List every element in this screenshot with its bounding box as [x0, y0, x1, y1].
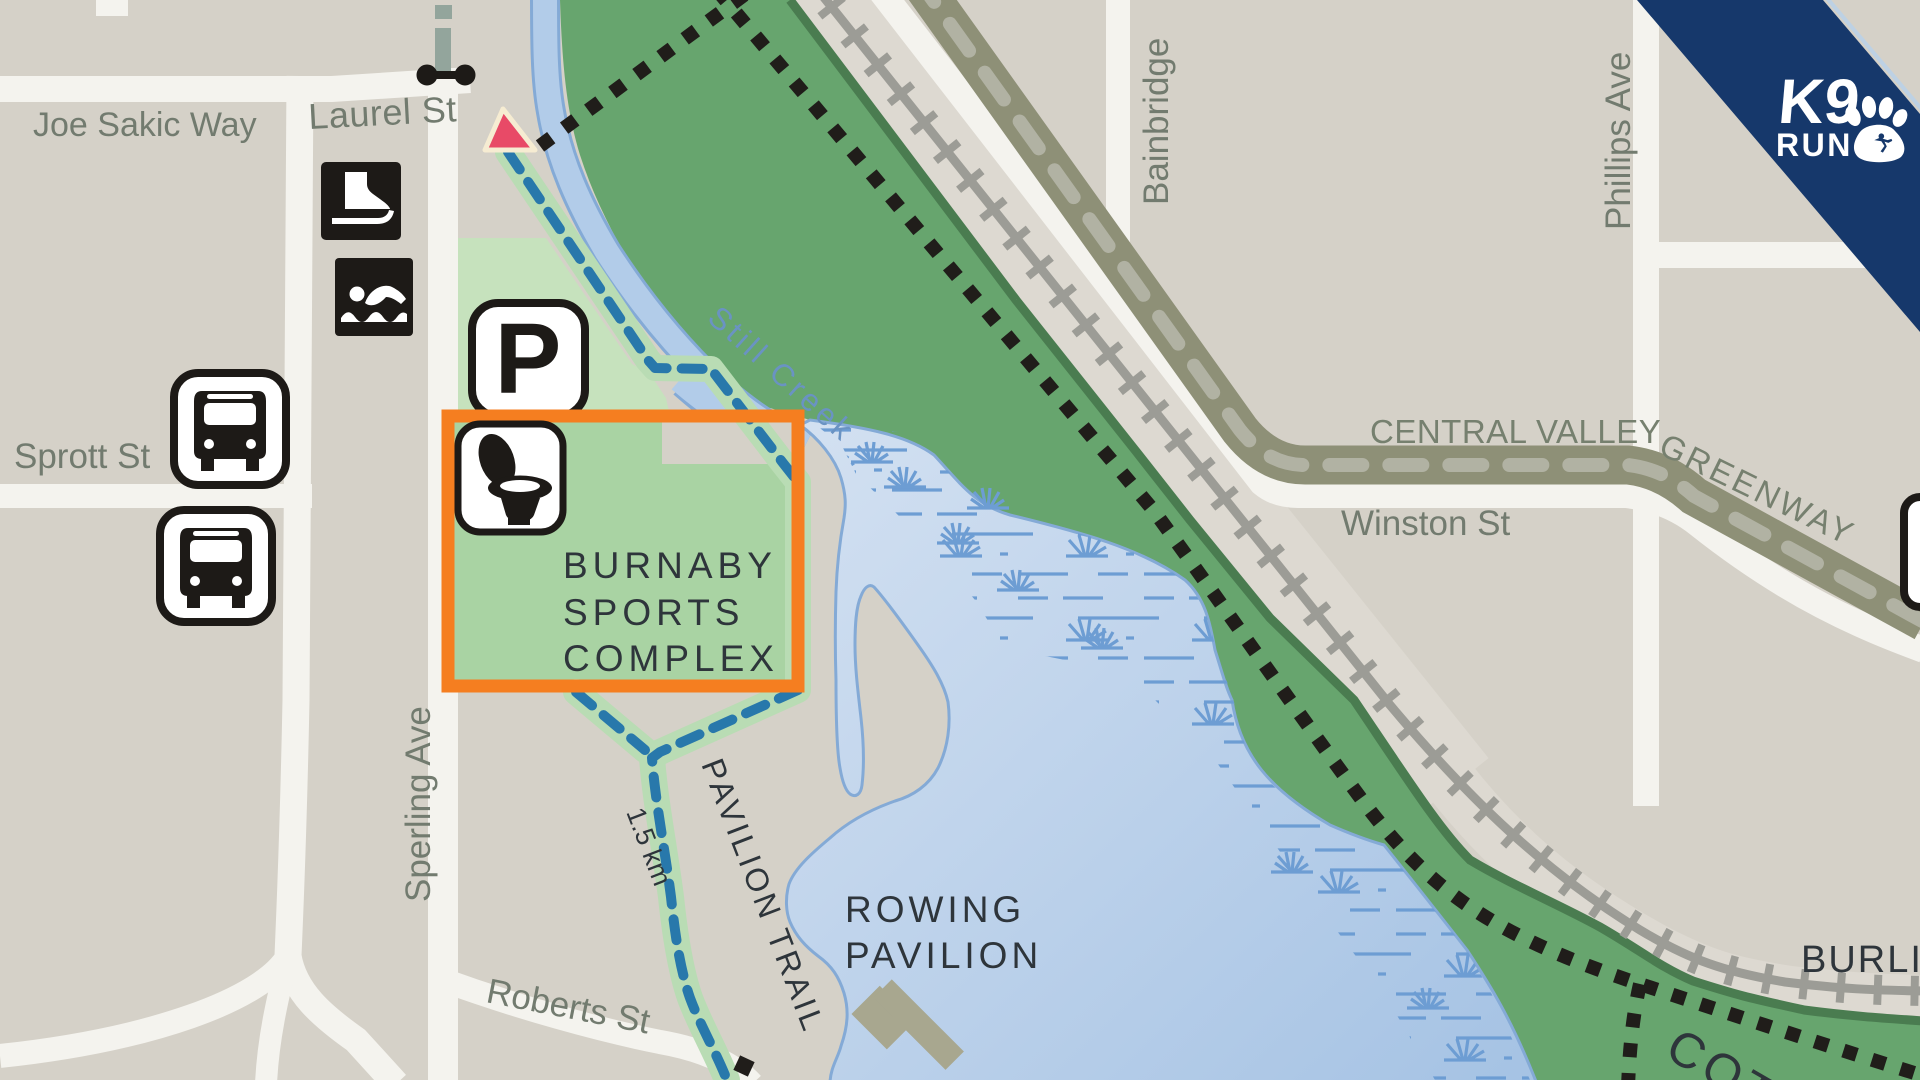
- svg-text:CENTRAL VALLEY: CENTRAL VALLEY: [1370, 413, 1661, 450]
- svg-text:COMPLEX: COMPLEX: [563, 638, 779, 679]
- svg-text:ROWING: ROWING: [845, 889, 1025, 930]
- svg-text:Phillips Ave: Phillips Ave: [1599, 52, 1638, 230]
- svg-text:BURNABY: BURNABY: [563, 545, 777, 586]
- svg-text:Sprott St: Sprott St: [14, 437, 150, 476]
- svg-text:Sperling Ave: Sperling Ave: [399, 706, 438, 902]
- svg-text:SPORTS: SPORTS: [563, 592, 744, 633]
- svg-text:Laurel St: Laurel St: [307, 88, 458, 137]
- svg-text:Bainbridge: Bainbridge: [1137, 38, 1176, 205]
- svg-text:PAVILION: PAVILION: [845, 935, 1042, 976]
- svg-text:BURLINGTON: BURLINGTON: [1801, 939, 1920, 981]
- svg-text:Joe Sakic Way: Joe Sakic Way: [33, 106, 257, 144]
- svg-text:RUN: RUN: [1776, 127, 1853, 163]
- svg-text:P: P: [495, 303, 562, 415]
- svg-text:Winston St: Winston St: [1341, 504, 1510, 543]
